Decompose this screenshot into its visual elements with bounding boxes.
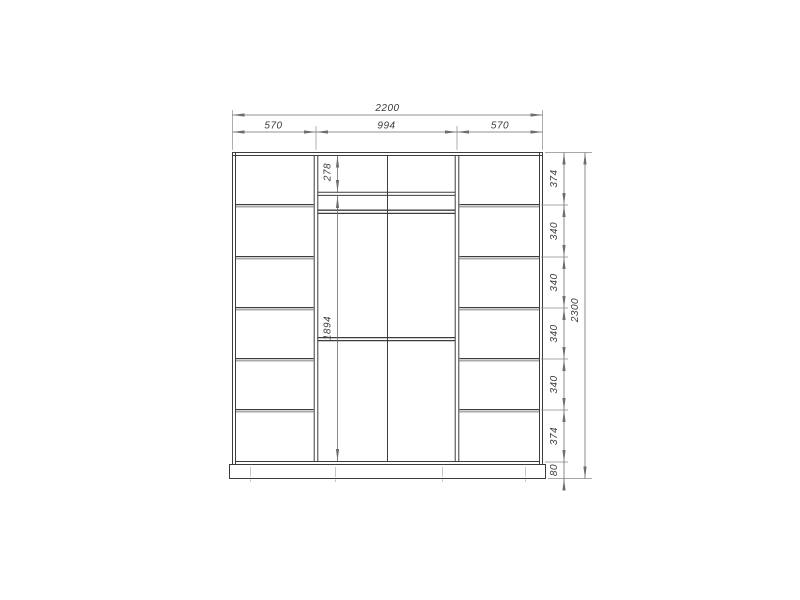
dim-label-top-compartment-height: 278 — [323, 163, 334, 182]
dim-label-section-6-height: 374 — [549, 427, 560, 445]
right-dimensions: 374 340 340 340 340 374 80 2300 — [541, 153, 592, 488]
dim-label-section-3-height: 340 — [549, 273, 560, 291]
dim-label-total-width: 2200 — [374, 103, 399, 114]
left-shelf-column — [236, 205, 314, 413]
dim-label-plinth-height: 80 — [549, 464, 560, 476]
plinth — [230, 465, 546, 483]
wardrobe-technical-drawing: 2200 570 994 570 374 340 340 340 340 374 — [0, 0, 800, 600]
inner-dimensions: 278 1894 — [323, 156, 338, 462]
dim-label-section-1-height: 374 — [549, 169, 560, 187]
middle-compartment — [318, 192, 455, 340]
top-dimensions: 2200 570 994 570 — [233, 103, 543, 150]
dim-label-total-height: 2300 — [570, 298, 581, 323]
dim-label-main-compartment-height: 1894 — [323, 316, 334, 340]
plinth-outline — [230, 465, 546, 479]
dim-label-left-section-width: 570 — [264, 121, 282, 132]
dim-label-right-section-width: 570 — [491, 121, 509, 132]
dim-label-section-5-height: 340 — [549, 375, 560, 393]
right-shelf-column — [460, 205, 540, 413]
dim-label-section-4-height: 340 — [549, 324, 560, 342]
dim-label-section-2-height: 340 — [549, 222, 560, 240]
dim-label-middle-section-width: 994 — [377, 121, 395, 132]
